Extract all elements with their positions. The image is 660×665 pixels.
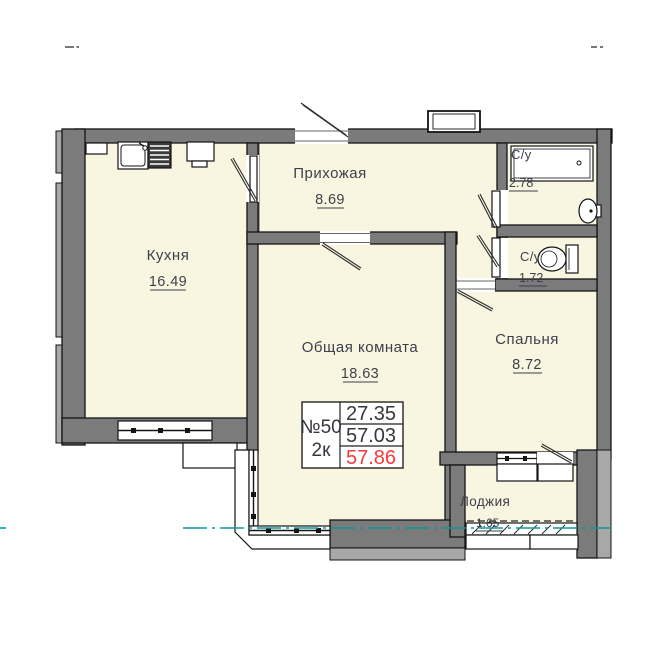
area-value: 57.03 (346, 425, 396, 447)
wall-left (62, 129, 85, 445)
loggia-door-sill (538, 464, 573, 481)
floor-plan: Кухня 16.49 Прихожая 8.69 Общая комната … (0, 0, 660, 660)
bathroom-label: С/у (511, 147, 532, 162)
vent-shaft (428, 111, 480, 132)
loggia-label: Лоджия (460, 494, 510, 509)
kitchen-area: 16.49 (149, 274, 187, 290)
toilet-icon (538, 245, 578, 273)
bedroom-door-opening (457, 278, 495, 292)
wc-label: С/у (520, 249, 541, 264)
bathroom-area: 2.78 (509, 176, 533, 190)
wc-area: 1.72 (519, 271, 543, 285)
wall-bedroom-top (495, 279, 597, 291)
apartment-info-table: №50 2к 27.35 57.03 57.86 (300, 402, 403, 469)
bedroom-window (497, 453, 537, 464)
drainer-icon (148, 142, 171, 168)
bedroom-area: 8.72 (512, 357, 542, 373)
loggia-sill-right (530, 535, 578, 549)
sink-icon (118, 142, 148, 169)
wall-bath-divider (497, 225, 597, 237)
kitchen-window (118, 421, 212, 440)
bedroom-window-sill (497, 464, 537, 481)
wall-loggia-right (577, 450, 597, 558)
living-area-value: 27.35 (346, 403, 396, 425)
bay-window-left (249, 450, 258, 526)
loggia-sill-left (466, 535, 530, 549)
room-living-floor (257, 243, 446, 527)
wall-loggia-right-outer (597, 450, 611, 558)
wall-niche (86, 143, 107, 154)
total-area-value: 57.86 (346, 447, 396, 469)
living-label: Общая комната (302, 339, 419, 356)
apartment-number: №50 (300, 417, 342, 438)
apartment-rooms-count: 2к (312, 440, 332, 461)
wall-bottom (330, 520, 465, 548)
hallway-area: 8.69 (315, 192, 345, 208)
wall-bottom-outer (330, 548, 465, 560)
floor-plan-page: Кухня 16.49 Прихожая 8.69 Общая комната … (0, 0, 660, 660)
exterior-step (183, 443, 237, 468)
loggia-area: 1.65 (476, 516, 500, 530)
bedroom-label: Спальня (495, 331, 559, 348)
kitchen-label: Кухня (147, 247, 190, 264)
wall-right (597, 129, 611, 460)
living-area: 18.63 (341, 366, 379, 382)
hallway-label: Прихожая (293, 165, 367, 182)
